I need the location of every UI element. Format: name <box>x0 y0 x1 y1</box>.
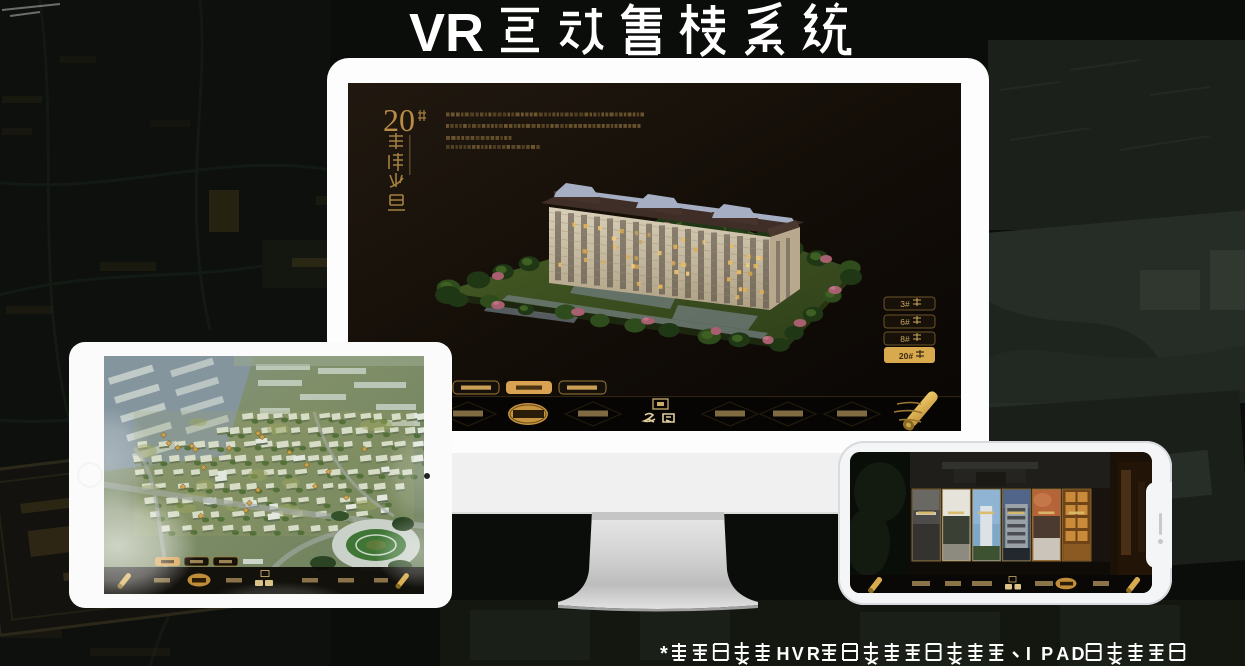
svg-text:A: A <box>1056 644 1069 664</box>
svg-text:R: R <box>807 644 820 664</box>
svg-text:D: D <box>1072 644 1085 664</box>
svg-text:6#: 6# <box>900 317 910 327</box>
svg-text:3#: 3# <box>900 299 910 309</box>
svg-text:VR: VR <box>409 3 484 60</box>
svg-text:*: * <box>660 643 668 665</box>
svg-text:I: I <box>1026 644 1031 664</box>
svg-text:20: 20 <box>383 102 415 138</box>
svg-text:V: V <box>792 644 804 664</box>
svg-text:P: P <box>1041 644 1053 664</box>
svg-text:H: H <box>777 644 790 664</box>
svg-text:20#: 20# <box>899 351 913 361</box>
svg-text:8#: 8# <box>900 334 910 344</box>
